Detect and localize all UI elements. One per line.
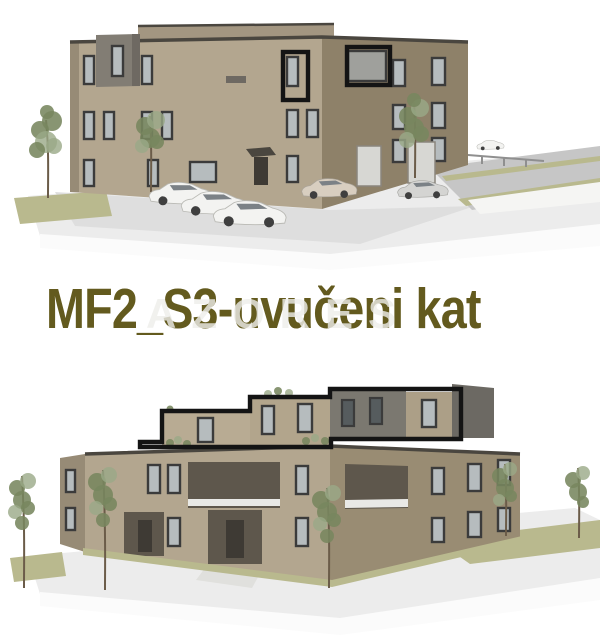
caption-row: MF2_S3-uvučeni kat AZORES xyxy=(0,270,600,368)
watermark-text: AZORES xyxy=(146,292,411,336)
balcony-railing xyxy=(188,499,280,506)
garage-door xyxy=(408,142,435,183)
entrance-door xyxy=(226,520,244,558)
render-top-building xyxy=(0,0,600,270)
building-bottom xyxy=(60,384,520,582)
garage-door xyxy=(357,146,381,186)
sliding-window-panel xyxy=(348,51,386,81)
tree xyxy=(29,105,62,198)
vent-slot xyxy=(226,76,246,83)
screenshot-root: MF2_S3-uvučeni kat AZORES xyxy=(0,0,600,635)
entrance-door xyxy=(254,157,268,185)
render-bottom-building xyxy=(0,368,600,635)
